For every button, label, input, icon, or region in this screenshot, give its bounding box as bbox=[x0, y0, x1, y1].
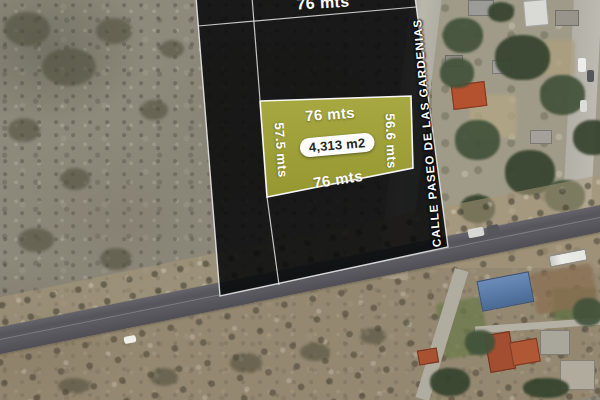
plot-boundary-overlay bbox=[0, 0, 600, 400]
parcel-top-width-label: 76 mts bbox=[304, 104, 355, 124]
satellite-map-view: 76 mts 76 mts 76 mts 57.5 mts 56.6 mts 4… bbox=[0, 0, 600, 400]
parcel-right-depth-label: 56.6 mts bbox=[383, 113, 400, 169]
